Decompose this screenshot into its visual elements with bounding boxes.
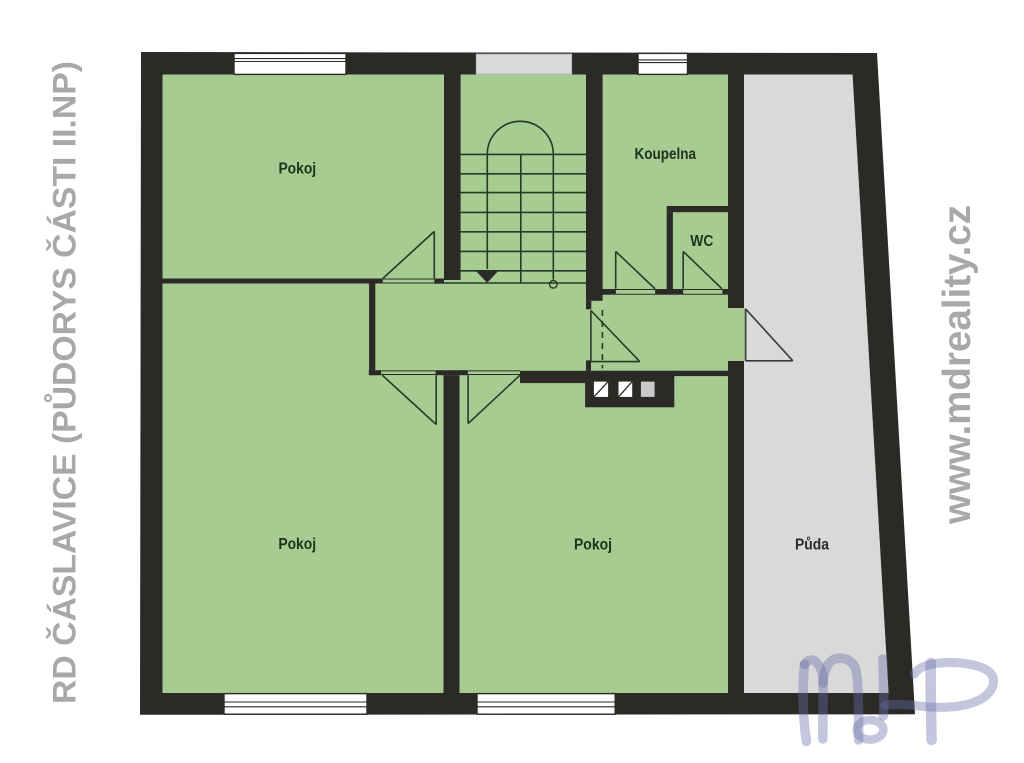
svg-text:Pokoj: Pokoj: [278, 160, 316, 177]
svg-text:www.mdreality.cz: www.mdreality.cz: [936, 205, 979, 525]
svg-text:Půda: Půda: [795, 536, 829, 553]
svg-text:WC: WC: [690, 233, 713, 250]
svg-text:Pokoj: Pokoj: [278, 536, 316, 553]
svg-text:Pokoj: Pokoj: [574, 536, 612, 553]
svg-text:RD ČÁSLAVICE (PŮDORYS ČÁSTI II: RD ČÁSLAVICE (PŮDORYS ČÁSTI II.NP): [43, 61, 83, 704]
svg-text:Koupelna: Koupelna: [635, 146, 697, 163]
